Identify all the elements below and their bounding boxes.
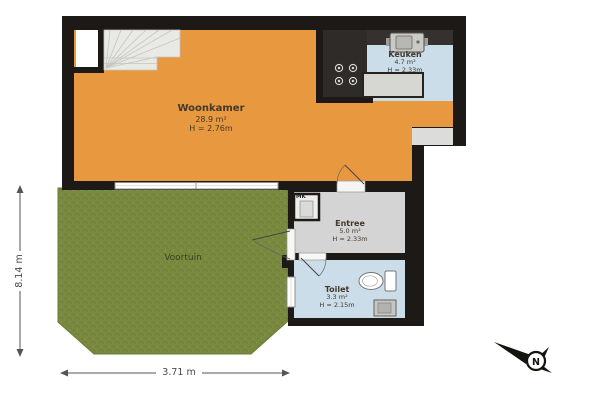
living-room-window <box>115 183 278 190</box>
toilet-icon <box>359 271 396 291</box>
compass-north-label: N <box>532 357 540 368</box>
toilet-window <box>287 277 295 307</box>
wall-keuken <box>316 30 323 96</box>
side-step-niche <box>412 128 453 145</box>
floor-plan-drawing: N <box>0 0 600 400</box>
kitchen-worktop <box>363 73 423 97</box>
floor-plan: N Woonkamer 28.9 m² H = 2.76m Keuken 4.7… <box>0 0 600 400</box>
kitchen-sink-icon <box>386 33 428 52</box>
meter-closet-inner <box>300 201 313 217</box>
washbasin-icon <box>374 300 396 316</box>
front-garden-area <box>58 188 288 354</box>
